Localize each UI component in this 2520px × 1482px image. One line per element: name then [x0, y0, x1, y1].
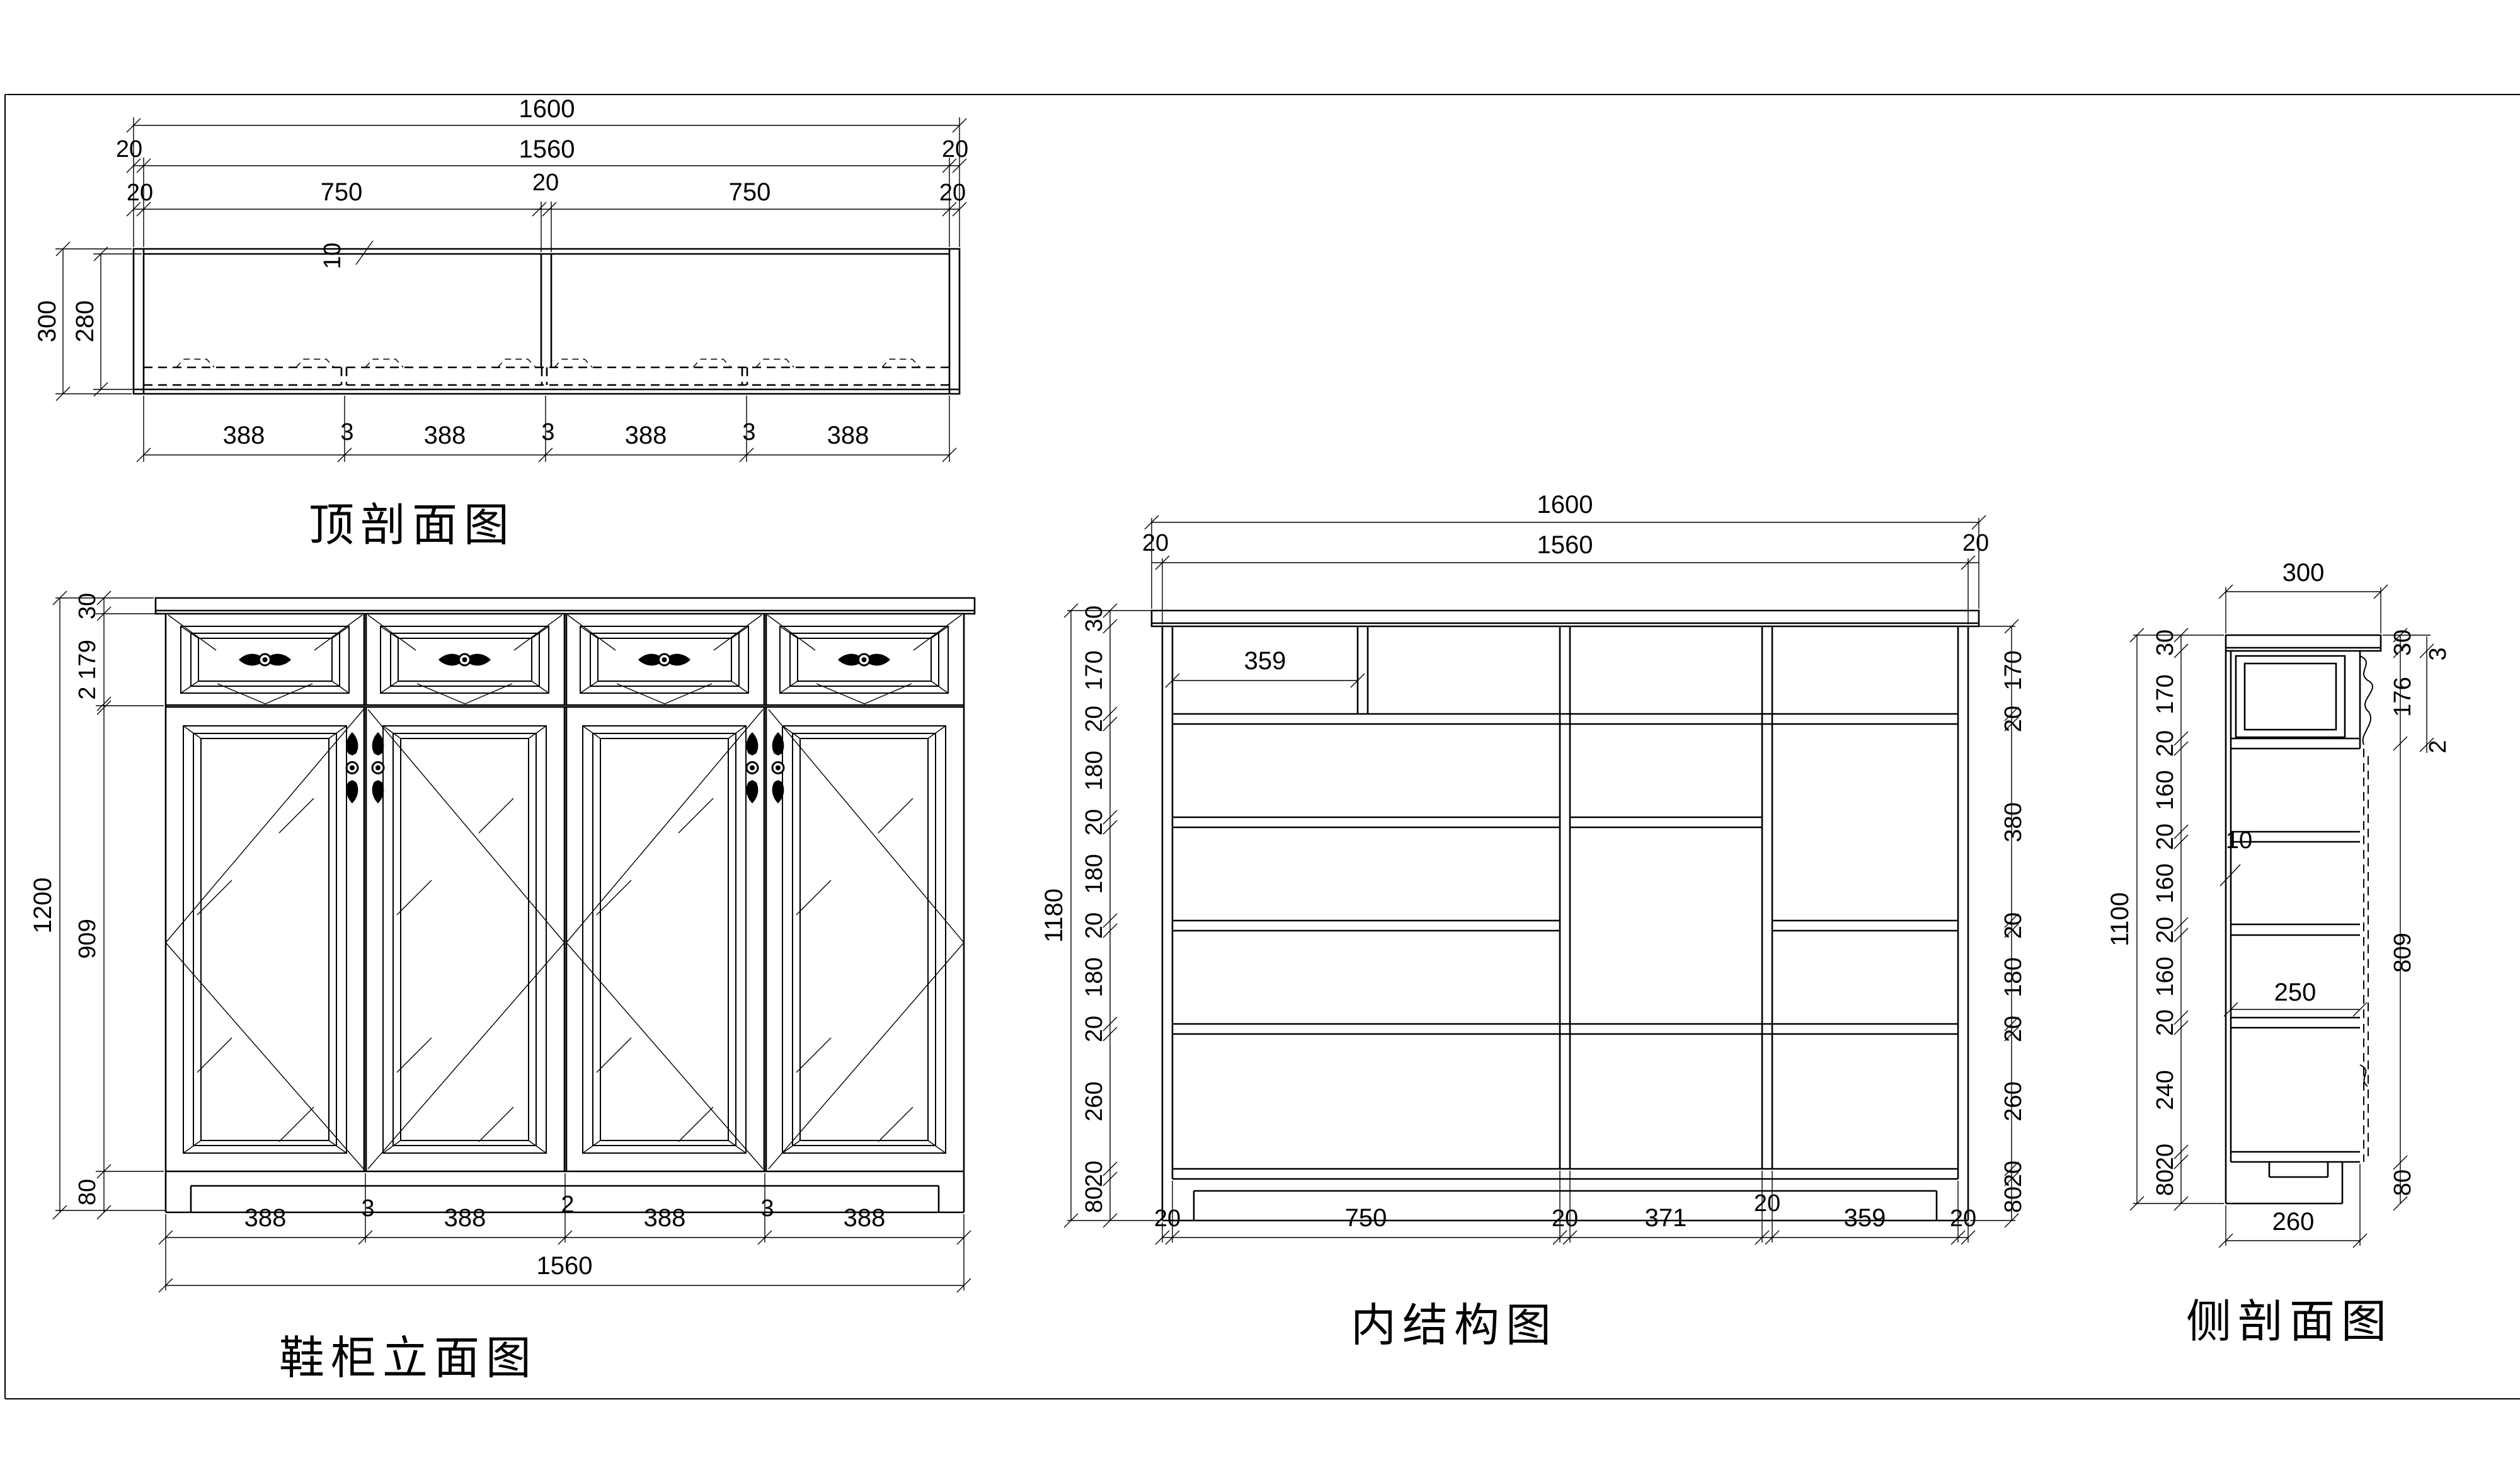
door-front [183, 726, 346, 1153]
dim-label: 20 [1754, 1190, 1780, 1217]
dim-label: 1100 [2106, 892, 2134, 946]
dim-label: 80 [74, 1179, 101, 1205]
dim-label: 359 [1844, 1204, 1886, 1232]
dim-label: 388 [644, 1204, 686, 1232]
shelves [1172, 714, 1958, 1179]
dim-label: 20 [1081, 706, 1108, 732]
dim-label: 20 [2152, 917, 2179, 943]
dim-label: 388 [444, 1204, 486, 1232]
dim-label: 160 [2152, 956, 2179, 996]
dim-label: 20 [2152, 1144, 2179, 1170]
door-handle-icon [372, 732, 384, 803]
dim-label: 170 [1081, 650, 1108, 690]
dim-label: 20 [942, 136, 968, 163]
dim-label: 3 [742, 419, 755, 445]
drawer-front [368, 615, 562, 704]
view-title-side-section: 侧剖面图 [2186, 1297, 2393, 1347]
view-title-internal: 内结构图 [1351, 1301, 1557, 1351]
dim-label: 160 [2152, 770, 2179, 810]
dim-label: 170 [2000, 650, 2027, 690]
dim-label: 20 [2152, 730, 2179, 757]
dim-label: 179 [74, 640, 101, 679]
dim-label: 20 [532, 169, 559, 196]
dim-label: 20 [1081, 1016, 1108, 1042]
dim-label: 260 [2000, 1081, 2027, 1121]
drawer-front [767, 615, 961, 704]
dim-label: 180 [1081, 750, 1108, 790]
dim-label: 20 [127, 180, 153, 206]
dim-label: 20 [939, 180, 966, 206]
cad-sheet: 1600 20 1560 20 20 750 20 750 20 10 388 … [0, 0, 2520, 1482]
dim-label: 20 [2152, 824, 2179, 850]
door-front [782, 726, 946, 1153]
door-handle-icon [772, 732, 784, 803]
dim-label: 20 [1552, 1205, 1578, 1232]
dim-label: 10 [319, 243, 346, 269]
plinth-section [2226, 1162, 2342, 1203]
dim-label: 20 [2000, 912, 2027, 939]
dim-label: 1600 [519, 95, 575, 123]
dim-label: 160 [2152, 863, 2179, 903]
dim-label: 240 [2152, 1070, 2179, 1110]
drawer-front [168, 615, 362, 704]
drawer-box-section [2236, 656, 2345, 737]
dim-label: 180 [2000, 957, 2027, 997]
dim-label: 380 [2000, 802, 2027, 842]
dim-label: 80 [2152, 1169, 2179, 1196]
dim-label: 3 [541, 419, 554, 445]
dim-label: 750 [729, 178, 771, 206]
shelf-sections [2231, 738, 2360, 1162]
dim-label: 20 [2152, 1009, 2179, 1036]
dim-label: 909 [74, 919, 101, 958]
dim-label: 300 [33, 301, 61, 343]
dim-label: 2 [74, 686, 101, 699]
dim-label: 3 [2425, 647, 2451, 660]
dim-label: 388 [223, 422, 265, 449]
dim-label: 20 [1154, 1205, 1181, 1232]
dim-label: 176 [2390, 677, 2416, 716]
dim-label: 20 [1142, 530, 1169, 556]
dim-label: 20 [1081, 809, 1108, 836]
door-section-hinges [176, 359, 920, 367]
dim-label: 30 [1081, 606, 1108, 632]
dim-label: 3 [361, 1195, 374, 1222]
front-molding-profile [2360, 656, 2373, 1086]
door-handle-icon [747, 732, 759, 803]
dim-label: 2 [2425, 740, 2451, 753]
dim-label: 1560 [1537, 531, 1593, 559]
top-section-view: 1600 20 1560 20 20 750 20 750 20 10 388 … [33, 95, 968, 551]
dim-label: 260 [1081, 1081, 1108, 1121]
dim-label: 20 [1081, 912, 1108, 939]
dim-label: 20 [1950, 1205, 1976, 1232]
dim-label: 3 [760, 1195, 774, 1222]
dim-label: 388 [424, 422, 466, 449]
dim-label: 250 [2274, 979, 2317, 1006]
dim-label: 388 [244, 1204, 287, 1232]
dim-label: 20 [2000, 706, 2027, 732]
dim-label: 80 [2000, 1186, 2027, 1213]
dim-label: 1560 [537, 1252, 593, 1280]
dim-label: 388 [625, 422, 667, 449]
dim-label: 388 [844, 1204, 886, 1232]
dim-label: 20 [2000, 1016, 2027, 1042]
dim-label: 809 [2390, 933, 2416, 972]
dim-label: 2 [561, 1192, 574, 1218]
dim-label: 1560 [519, 135, 575, 163]
side-section-view: 300 30 170 20 160 20 160 20 160 20 240 2… [2106, 559, 2451, 1347]
dim-label: 3 [340, 419, 353, 445]
view-title-elevation: 鞋柜立面图 [279, 1333, 537, 1384]
dim-label: 260 [2272, 1208, 2315, 1236]
dim-label: 1600 [1537, 491, 1593, 519]
dim-label: 180 [1081, 957, 1108, 997]
dim-label: 30 [2390, 629, 2416, 656]
door-handle-icon [346, 732, 358, 803]
view-title-top-section: 顶剖面图 [309, 500, 515, 551]
dim-label: 20 [1962, 530, 1989, 556]
cabinet-drawing: 1600 20 1560 20 20 750 20 750 20 10 388 … [0, 0, 2520, 1482]
dim-label: 170 [2152, 674, 2179, 714]
dim-label: 30 [74, 593, 101, 619]
dim-label: 750 [321, 178, 363, 206]
internal-structure-view: 1600 20 1560 20 30 170 20 180 20 180 20 … [1040, 491, 2027, 1351]
dim-label: 300 [2282, 559, 2325, 587]
dim-label: 20 [1081, 1161, 1108, 1187]
dim-label: 180 [1081, 854, 1108, 893]
door-front [583, 726, 746, 1153]
dim-label: 10 [2226, 827, 2252, 854]
dim-label: 80 [2390, 1169, 2416, 1196]
dim-label: 388 [827, 422, 869, 449]
dim-label: 280 [71, 301, 99, 343]
drawer-front [568, 615, 762, 704]
dim-label: 20 [2000, 1161, 2027, 1187]
dim-label: 359 [1244, 647, 1286, 675]
dim-label: 30 [2152, 629, 2179, 656]
dim-label: 1180 [1040, 888, 1068, 943]
elevation-view: 30 179 2 909 80 1200 388 3 388 2 388 3 3… [29, 591, 975, 1384]
door-front [383, 726, 546, 1153]
door-face-section [2364, 749, 2368, 1162]
dim-label: 1200 [29, 878, 57, 934]
dim-label: 80 [1081, 1186, 1108, 1213]
dim-label: 20 [116, 136, 142, 163]
dim-label: 371 [1645, 1204, 1687, 1232]
dim-label: 750 [1345, 1204, 1387, 1232]
